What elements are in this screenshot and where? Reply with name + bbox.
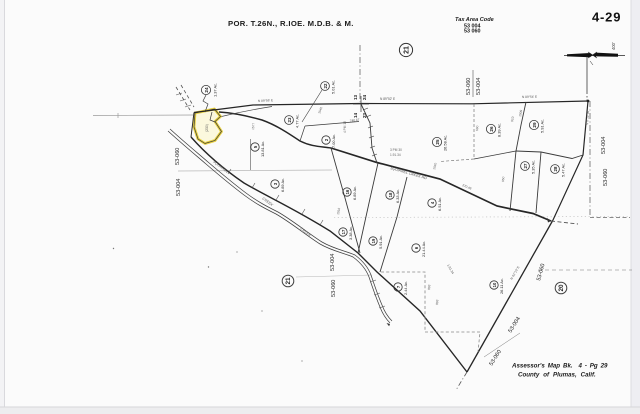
svg-text:53-060: 53-060 (175, 148, 181, 165)
svg-text:26: 26 (489, 126, 494, 132)
svg-text:22: 22 (323, 83, 328, 88)
svg-text:5.35 Ac.: 5.35 Ac. (531, 160, 536, 174)
svg-text:3.38 Ac.: 3.38 Ac. (348, 226, 353, 240)
svg-text:25: 25 (435, 139, 440, 145)
svg-text:POR. T.26N., R.IOE. M.D.B.: POR. T.26N., R.IOE. M.D.B. & M. (228, 19, 354, 28)
svg-text:21.44 Ac.: 21.44 Ac. (421, 241, 426, 257)
svg-text:6.89 Ac.: 6.89 Ac. (352, 186, 357, 200)
svg-text:19: 19 (371, 238, 376, 243)
svg-text:4 PM 15: 4 PM 15 (343, 121, 347, 133)
svg-text:5.91 Ac.: 5.91 Ac. (540, 119, 545, 133)
svg-text:53-060: 53-060 (603, 169, 609, 186)
svg-text:53-060: 53-060 (331, 280, 337, 297)
svg-text:4.77 Ac.: 4.77 Ac. (295, 114, 300, 128)
svg-text:53-004: 53-004 (176, 179, 182, 196)
svg-text:28: 28 (553, 166, 558, 171)
svg-text:24: 24 (362, 94, 367, 100)
svg-text:8.39 Ac.: 8.39 Ac. (497, 123, 502, 137)
svg-text:4-29: 4-29 (592, 10, 621, 25)
svg-text:21: 21 (285, 277, 292, 285)
svg-text:27: 27 (523, 163, 528, 168)
svg-text:53-060: 53-060 (466, 78, 472, 95)
svg-text:6.51 Ac.: 6.51 Ac. (437, 197, 442, 211)
svg-text:26.58 Ac.: 26.58 Ac. (443, 135, 448, 151)
svg-text:23: 23 (287, 117, 292, 122)
svg-text:5.47 Ac.: 5.47 Ac. (561, 163, 566, 177)
svg-text:53-004: 53-004 (476, 78, 482, 95)
svg-text:Assessor's Map Bk. 4 - Pg 29: Assessor's Map Bk. 4 - Pg 29 (511, 363, 608, 370)
svg-text:16: 16 (345, 189, 350, 194)
svg-text:21: 21 (403, 46, 410, 54)
svg-text:5.91 Ac.: 5.91 Ac. (378, 235, 383, 249)
svg-text:893: 893 (435, 299, 439, 305)
svg-text:1.91.34: 1.91.34 (390, 153, 401, 157)
svg-text:13: 13 (353, 94, 358, 100)
svg-text:N 89°54' E: N 89°54' E (522, 95, 537, 99)
svg-text:N 89°52' E: N 89°52' E (380, 97, 395, 101)
svg-text:690: 690 (475, 125, 479, 131)
svg-text:23: 23 (362, 112, 367, 118)
svg-text:Tax Area Code: Tax Area Code (455, 17, 494, 23)
svg-text:17: 17 (341, 229, 346, 234)
svg-text:13.81 Ac.: 13.81 Ac. (260, 141, 265, 157)
svg-text:53-004: 53-004 (601, 137, 607, 154)
svg-text:29: 29 (532, 122, 537, 128)
svg-text:53 060: 53 060 (464, 29, 481, 35)
svg-text:7.00 Ac.: 7.00 Ac. (331, 134, 336, 148)
svg-text:893: 893 (427, 284, 431, 290)
svg-text:County of Plumas, Calif.: County of Plumas, Calif. (518, 372, 596, 379)
svg-text:1.37 Ac.: 1.37 Ac. (213, 83, 218, 97)
svg-text:5.01 Ac.: 5.01 Ac. (331, 80, 336, 94)
svg-text:6.89 Ac.: 6.89 Ac. (280, 178, 285, 192)
svg-text:18: 18 (388, 192, 393, 197)
svg-text:24: 24 (204, 87, 209, 93)
svg-text:(230): (230) (205, 124, 209, 132)
svg-text:26.11 Ac.: 26.11 Ac. (499, 278, 504, 294)
svg-text:10: 10 (492, 282, 497, 287)
svg-text:3 PM 30: 3 PM 30 (390, 148, 402, 152)
svg-text:53-004: 53-004 (330, 254, 336, 271)
svg-text:6.33 Ac.: 6.33 Ac. (395, 189, 400, 203)
svg-text:N 89°56' E: N 89°56' E (258, 98, 273, 103)
svg-text:400': 400' (611, 42, 616, 50)
svg-text:2.44 Ac.: 2.44 Ac. (403, 281, 408, 295)
svg-text:1577: 1577 (251, 122, 256, 130)
svg-text:950: 950 (501, 176, 505, 182)
svg-text:20: 20 (558, 284, 565, 292)
